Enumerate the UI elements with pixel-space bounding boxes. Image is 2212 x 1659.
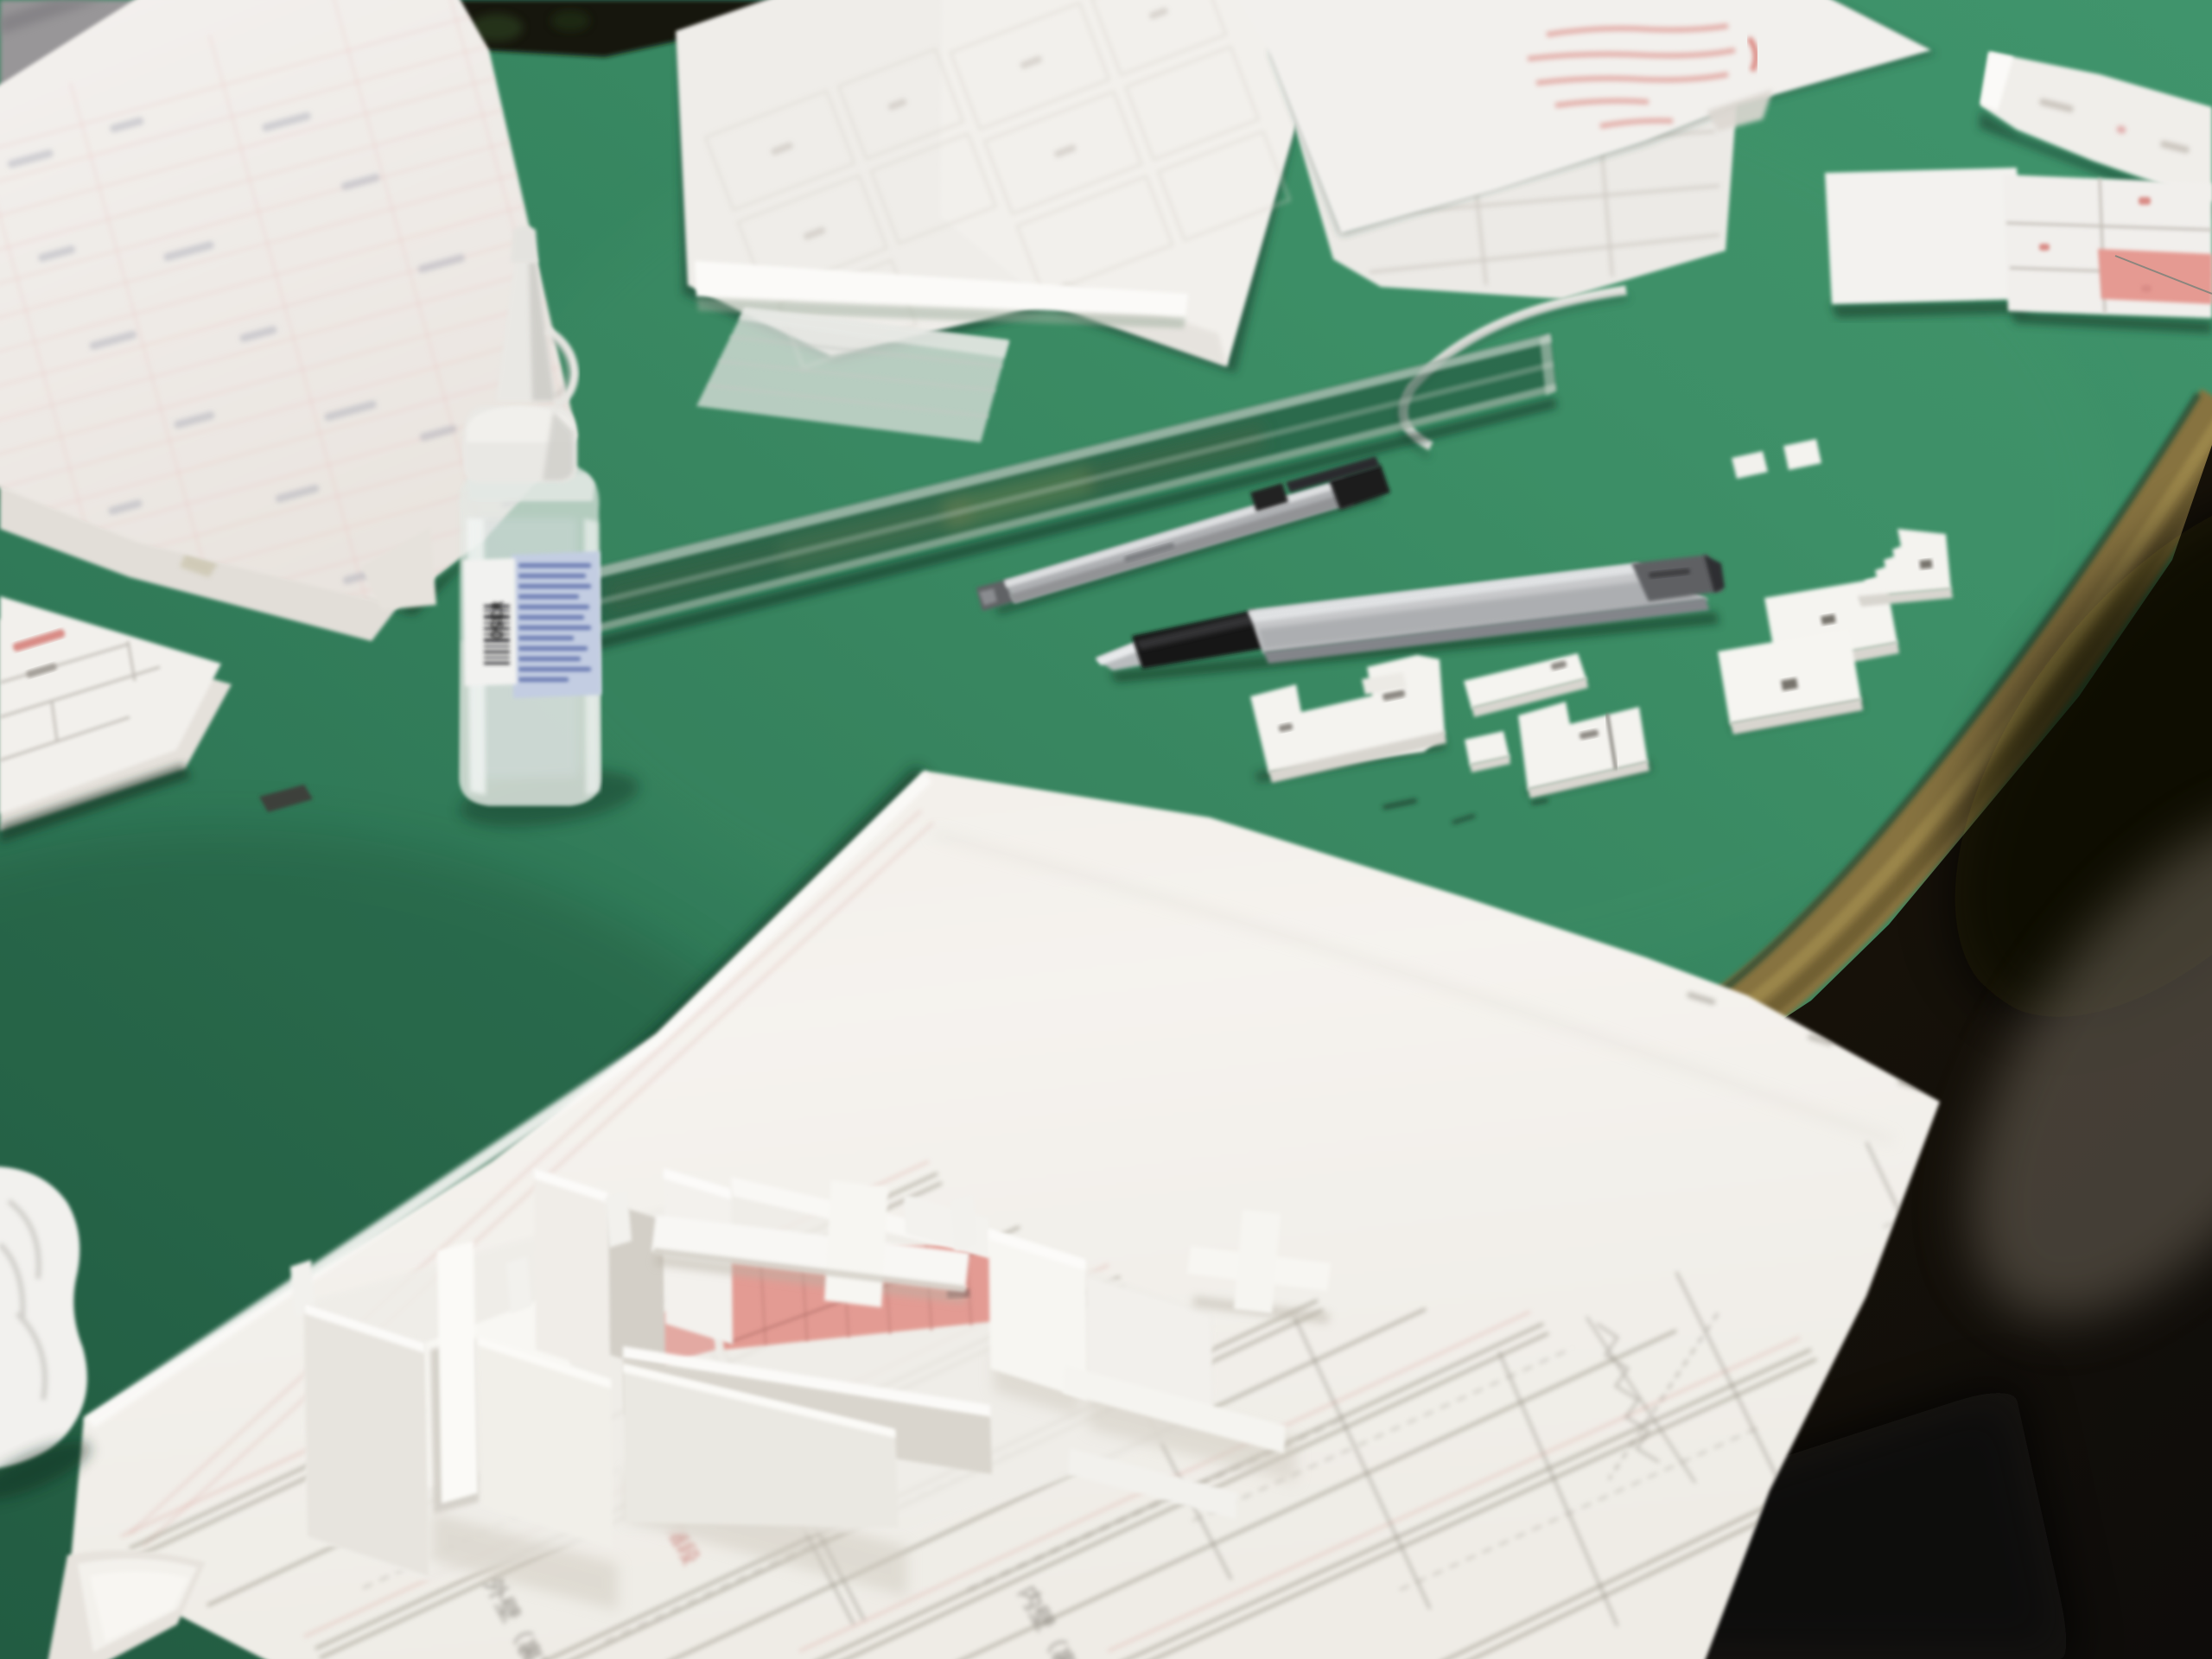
svg-text:¥350: ¥350 bbox=[486, 601, 505, 640]
